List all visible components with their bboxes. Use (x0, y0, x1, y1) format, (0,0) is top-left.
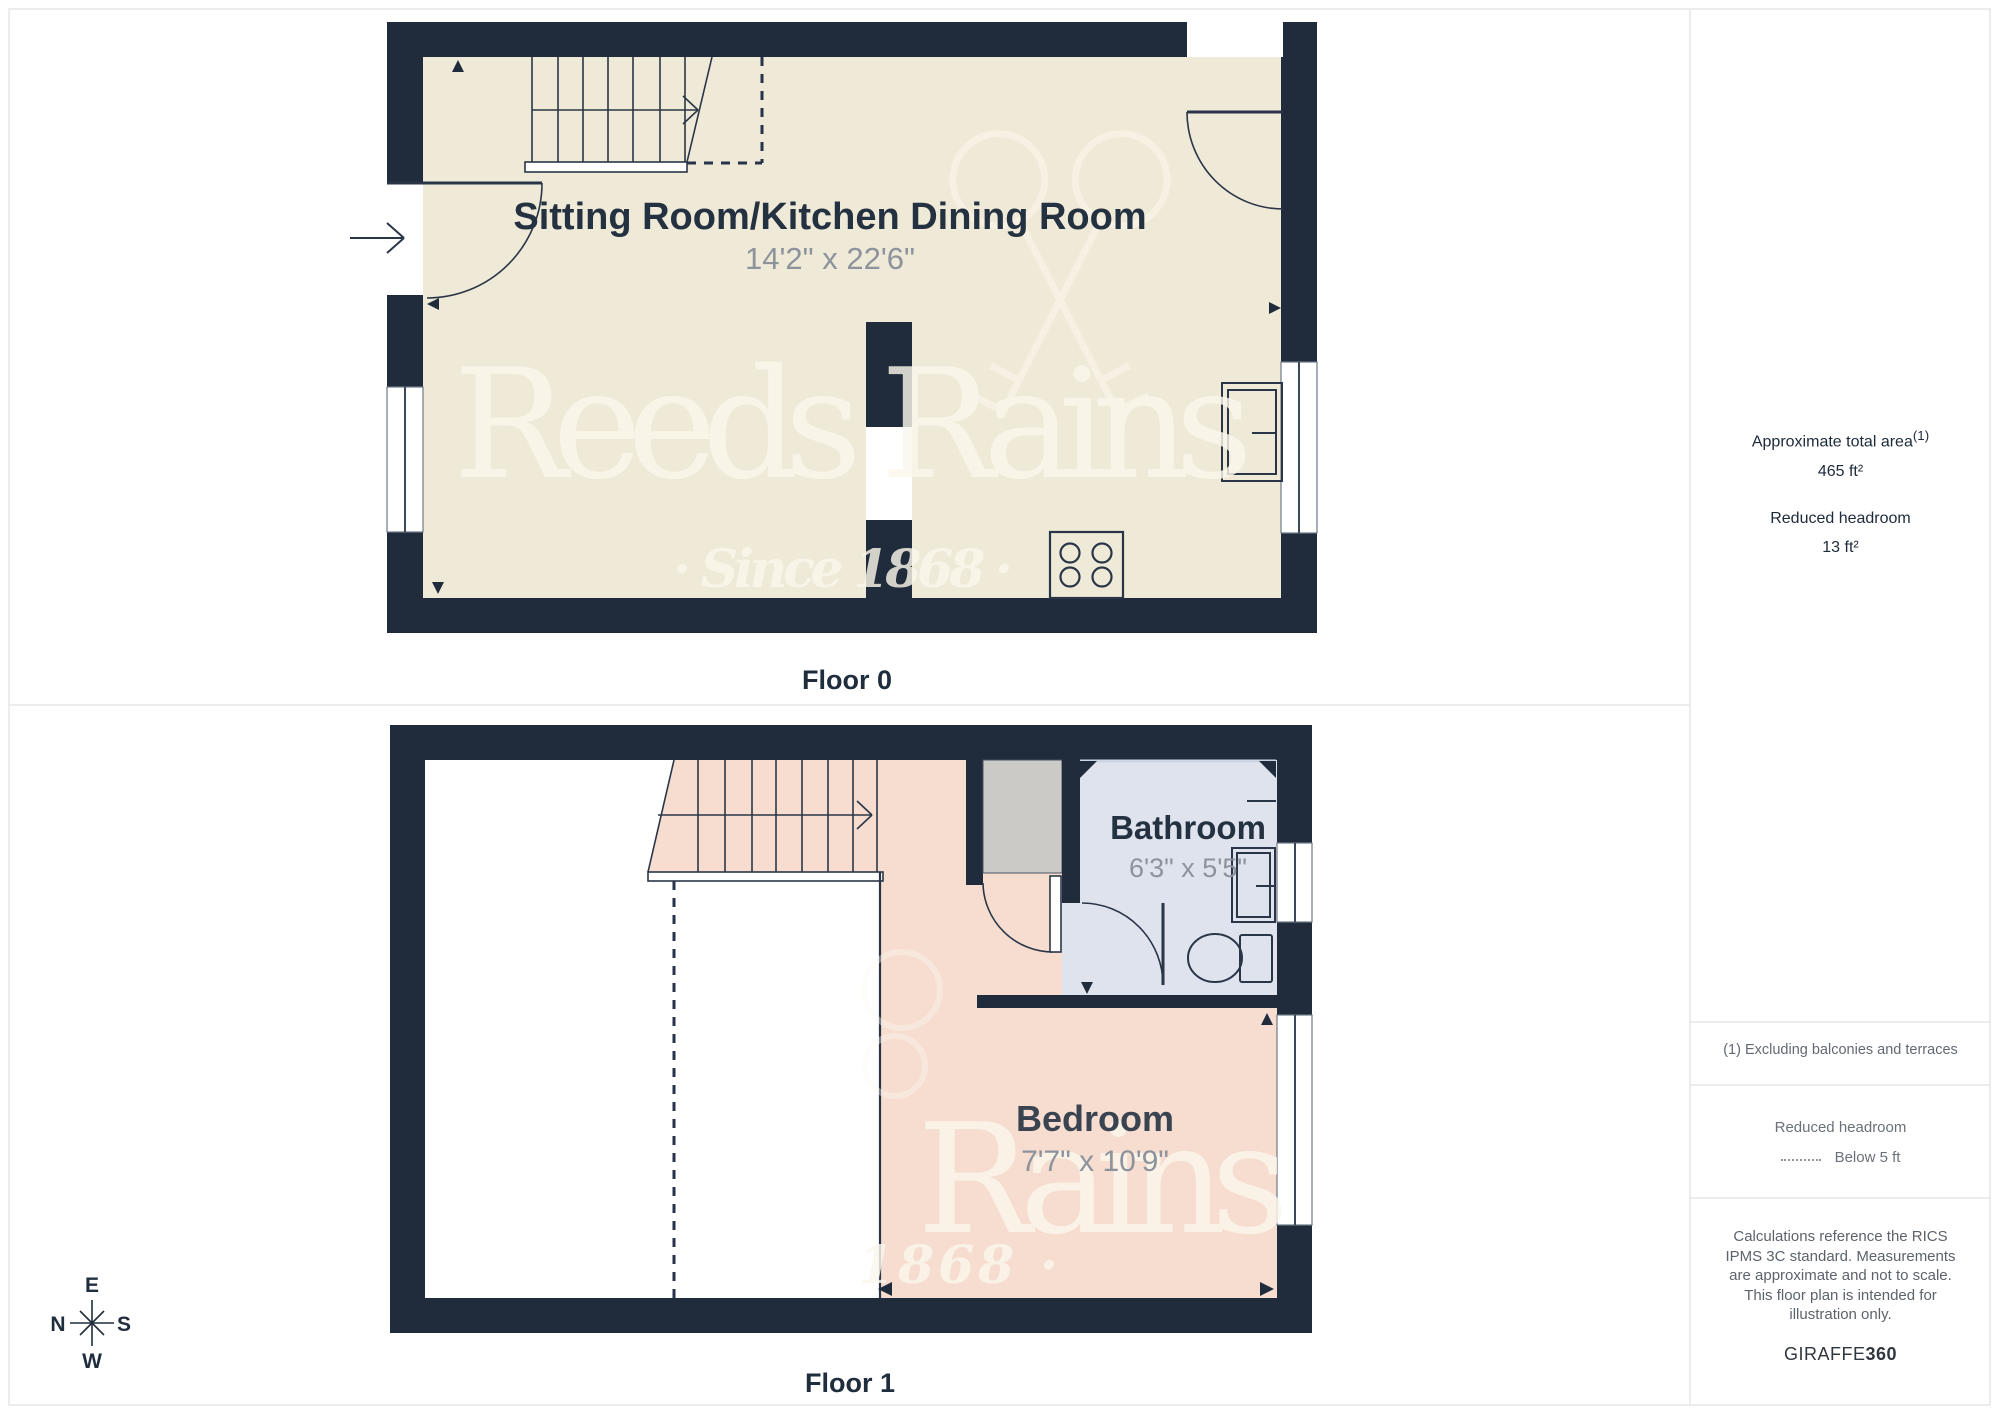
right-window-icon (1281, 362, 1317, 533)
floor0-room-dims: 14'2" x 22'6" (745, 241, 915, 276)
total-area-footnote-marker: (1) (1913, 428, 1929, 443)
bedroom-top-wall (977, 995, 1277, 1008)
legend-title: Reduced headroom (1691, 1119, 1990, 1136)
wall-stub-floor1 (966, 760, 983, 885)
compass-right-label: S (117, 1313, 131, 1336)
stair-floor (648, 760, 880, 872)
floorplan-canvas: Reeds Rains · Since 1868 · Rains 1868 · … (0, 0, 2000, 1414)
footnote-text: (1) Excluding balconies and terraces (1691, 1042, 1990, 1058)
floor0-room-floor (423, 57, 1281, 598)
total-area-label: Approximate total area(1) (1691, 428, 1990, 451)
bathroom-doorway (1062, 903, 1080, 1000)
compass-icon: E N S W (50, 1274, 131, 1373)
disclaimer-text: Calculations reference the RICS IPMS 3C … (1716, 1227, 1966, 1325)
total-area-label-text: Approximate total area (1752, 433, 1913, 450)
giraffe360-logo: GIRAFFE360 (1691, 1344, 1990, 1365)
bathroom-window-icon (1277, 843, 1312, 922)
total-area-value: 465 ft² (1691, 463, 1990, 481)
bathroom-name: Bathroom (1110, 809, 1266, 846)
legend-row: Below 5 ft (1691, 1149, 1990, 1166)
compass-left-label: N (50, 1313, 65, 1336)
bedroom-dims: 7'7" x 10'9" (1021, 1145, 1169, 1178)
left-window-icon (387, 387, 423, 532)
watermark-brand: Reeds Rains (453, 336, 1253, 513)
compass-top-label: E (85, 1274, 99, 1297)
reduced-headroom-value: 13 ft² (1691, 539, 1990, 557)
floor0-room-name: Sitting Room/Kitchen Dining Room (513, 196, 1146, 238)
disclaimer-block: Calculations reference the RICS IPMS 3C … (1691, 1227, 1990, 1325)
watermark-since: · Since 1868 · (673, 539, 1013, 600)
floor0-label: Floor 0 (802, 665, 892, 695)
legend-value-text: Below 5 ft (1835, 1149, 1901, 1166)
bathroom-left-wall (1062, 760, 1080, 903)
compass-bottom-label: W (82, 1350, 102, 1373)
dotted-line-icon (1781, 1155, 1821, 1161)
bedroom-name: Bedroom (1016, 1098, 1174, 1139)
reduced-headroom-label: Reduced headroom (1691, 510, 1990, 528)
chimney-block (983, 760, 1062, 873)
top-right-door-opening (1187, 22, 1283, 57)
giraffe-logo-text: GIRAFFE (1784, 1344, 1866, 1364)
floor1-label: Floor 1 (805, 1368, 895, 1398)
giraffe-logo-360: 360 (1865, 1344, 1897, 1364)
watermark-since-floor1: 1868 · (858, 1235, 1058, 1296)
stove-icon (1050, 532, 1123, 598)
bathroom-dims: 6'3" x 5'5" (1129, 853, 1247, 883)
floorplan-page: Reeds Rains · Since 1868 · Rains 1868 · … (0, 0, 2000, 1414)
